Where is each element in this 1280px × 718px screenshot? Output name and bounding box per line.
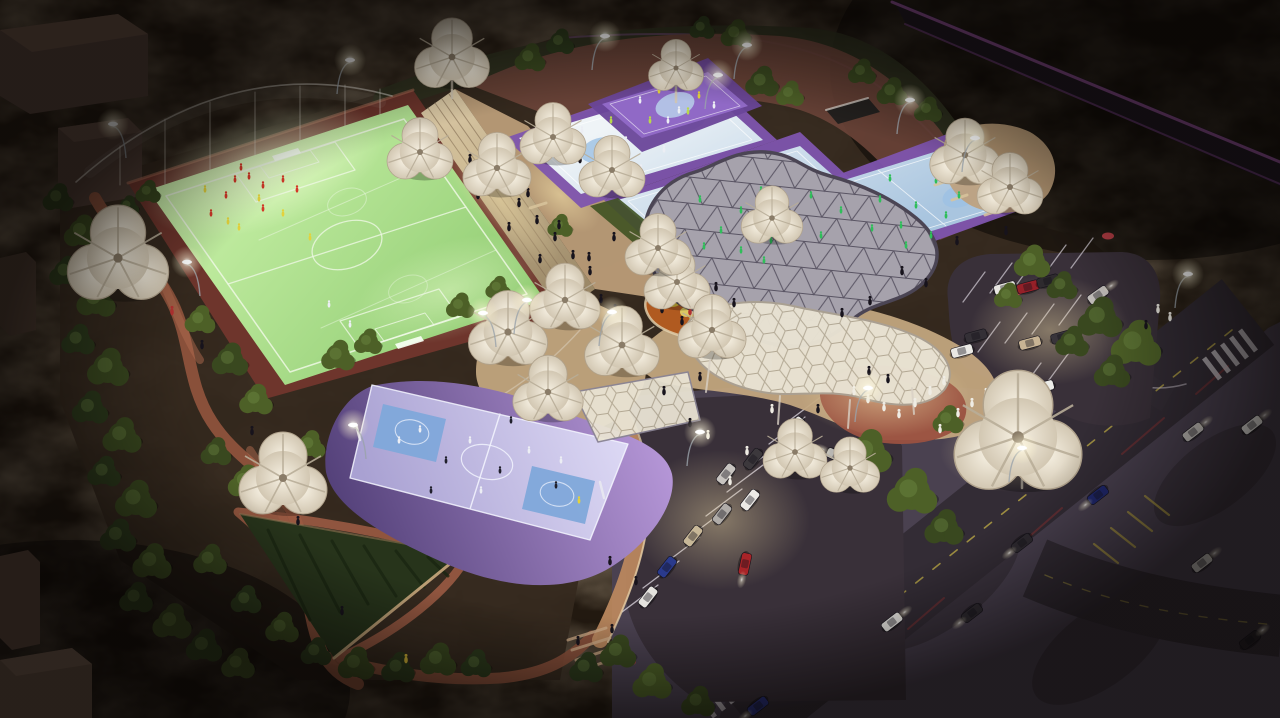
sports-park-night-rendering xyxy=(0,0,1280,718)
vignette xyxy=(0,0,1280,718)
rendering-canvas xyxy=(0,0,1280,718)
